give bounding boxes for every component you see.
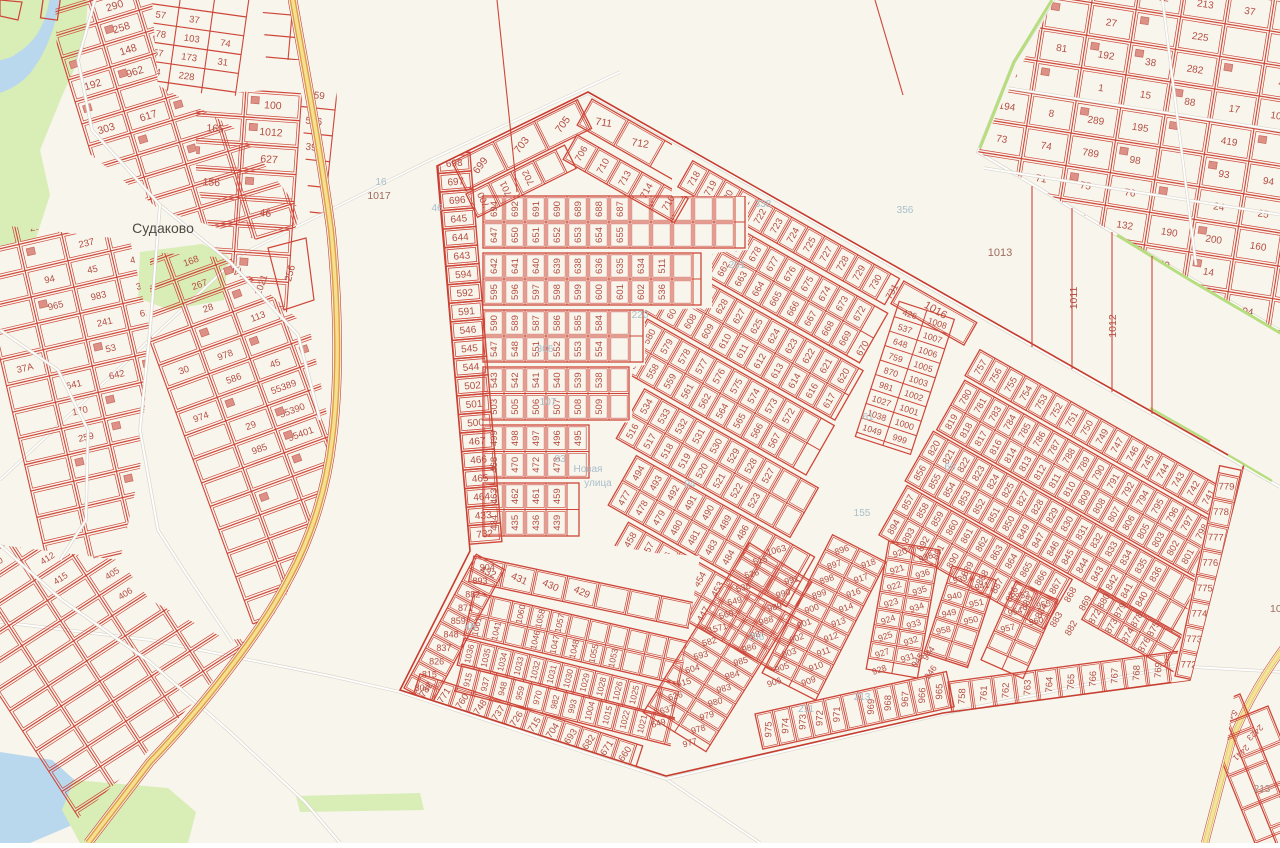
- svg-text:74: 74: [219, 38, 231, 50]
- svg-text:635: 635: [615, 258, 626, 274]
- svg-text:459: 459: [552, 488, 563, 504]
- svg-text:46: 46: [431, 203, 443, 214]
- svg-text:586: 586: [552, 315, 563, 331]
- svg-text:48: 48: [464, 622, 476, 633]
- svg-text:31: 31: [217, 56, 229, 68]
- svg-text:541: 541: [531, 372, 542, 388]
- svg-text:38: 38: [1144, 57, 1157, 70]
- svg-text:500: 500: [467, 417, 485, 429]
- svg-text:1012: 1012: [259, 126, 283, 140]
- svg-text:967: 967: [900, 691, 911, 707]
- svg-text:596: 596: [510, 284, 521, 300]
- svg-text:155: 155: [854, 508, 871, 519]
- svg-text:774: 774: [1191, 609, 1207, 620]
- svg-text:156: 156: [202, 176, 220, 189]
- svg-text:639: 639: [552, 258, 563, 274]
- svg-text:601: 601: [615, 284, 626, 300]
- svg-text:696: 696: [449, 195, 467, 207]
- svg-text:88: 88: [1183, 96, 1196, 109]
- svg-text:765: 765: [1066, 674, 1078, 690]
- svg-text:496: 496: [552, 430, 563, 446]
- svg-text:10: 10: [1270, 603, 1280, 615]
- svg-text:598: 598: [552, 284, 563, 300]
- svg-text:173: 173: [180, 51, 197, 64]
- svg-text:291: 291: [729, 260, 746, 271]
- svg-text:103: 103: [183, 33, 200, 46]
- svg-text:767: 767: [1109, 668, 1121, 684]
- svg-text:552: 552: [552, 341, 563, 357]
- svg-text:16: 16: [375, 177, 387, 188]
- svg-text:228: 228: [178, 70, 195, 83]
- svg-text:591: 591: [458, 306, 476, 318]
- svg-text:688: 688: [594, 201, 605, 217]
- svg-text:641: 641: [510, 258, 521, 274]
- svg-text:улица: улица: [584, 478, 612, 489]
- svg-text:165: 165: [206, 122, 224, 135]
- svg-text:544: 544: [462, 362, 480, 374]
- svg-text:837: 837: [436, 643, 451, 653]
- svg-text:100: 100: [264, 99, 282, 112]
- svg-text:508: 508: [573, 399, 584, 415]
- svg-text:37: 37: [188, 14, 200, 26]
- svg-text:655: 655: [615, 227, 626, 243]
- svg-text:584: 584: [594, 315, 605, 331]
- svg-text:472: 472: [531, 457, 542, 473]
- svg-text:547: 547: [489, 341, 500, 357]
- svg-text:554: 554: [594, 341, 605, 357]
- svg-text:826: 826: [429, 656, 444, 666]
- svg-text:503: 503: [489, 399, 500, 415]
- svg-text:83: 83: [554, 454, 566, 465]
- svg-text:589: 589: [510, 315, 521, 331]
- svg-text:968: 968: [883, 695, 894, 711]
- svg-text:213: 213: [1254, 784, 1271, 795]
- svg-text:462: 462: [510, 488, 521, 504]
- svg-text:46: 46: [259, 207, 272, 220]
- svg-text:495: 495: [573, 430, 584, 446]
- svg-text:540: 540: [552, 372, 563, 388]
- svg-text:470: 470: [510, 457, 521, 473]
- svg-text:545: 545: [461, 343, 479, 355]
- svg-text:206: 206: [748, 632, 765, 643]
- svg-text:338: 338: [755, 199, 772, 210]
- svg-text:650: 650: [510, 227, 521, 243]
- svg-text:651: 651: [531, 227, 542, 243]
- svg-text:461: 461: [531, 488, 542, 504]
- svg-text:94: 94: [1262, 176, 1275, 189]
- svg-text:553: 553: [573, 341, 584, 357]
- svg-text:356: 356: [897, 205, 914, 216]
- svg-text:1013: 1013: [988, 247, 1012, 259]
- svg-text:777: 777: [1208, 532, 1224, 543]
- svg-text:538: 538: [594, 372, 605, 388]
- svg-text:434: 434: [489, 515, 500, 531]
- svg-text:536: 536: [657, 284, 668, 300]
- svg-text:502: 502: [464, 380, 482, 392]
- svg-text:213: 213: [854, 692, 871, 703]
- svg-text:761: 761: [978, 685, 990, 701]
- svg-text:93: 93: [1218, 169, 1231, 182]
- svg-text:94: 94: [684, 479, 696, 490]
- svg-text:466: 466: [470, 454, 488, 466]
- svg-text:643: 643: [453, 250, 471, 262]
- svg-text:634: 634: [636, 258, 647, 274]
- svg-text:762: 762: [1000, 682, 1012, 698]
- svg-text:600: 600: [594, 284, 605, 300]
- svg-text:1011: 1011: [1068, 287, 1080, 310]
- svg-text:766: 766: [1088, 671, 1100, 687]
- svg-text:691: 691: [531, 201, 542, 217]
- svg-text:594: 594: [455, 269, 473, 281]
- svg-text:599: 599: [573, 284, 584, 300]
- svg-text:499: 499: [489, 430, 500, 446]
- svg-text:654: 654: [594, 227, 605, 243]
- svg-text:539: 539: [573, 372, 584, 388]
- svg-text:769: 769: [1153, 662, 1165, 678]
- svg-text:14: 14: [1202, 266, 1215, 279]
- svg-text:644: 644: [452, 232, 470, 244]
- svg-text:965: 965: [934, 684, 945, 700]
- svg-text:597: 597: [531, 284, 542, 300]
- svg-text:627: 627: [260, 153, 278, 166]
- svg-text:972: 972: [814, 710, 825, 726]
- svg-text:590: 590: [489, 315, 500, 331]
- svg-text:778: 778: [1213, 507, 1229, 518]
- svg-text:966: 966: [917, 687, 928, 703]
- svg-text:1017: 1017: [367, 190, 391, 202]
- svg-text:779: 779: [1218, 481, 1234, 492]
- svg-text:640: 640: [531, 258, 542, 274]
- svg-text:763: 763: [1022, 679, 1034, 695]
- svg-text:694: 694: [489, 201, 500, 217]
- svg-text:17: 17: [1228, 103, 1241, 116]
- svg-text:636: 636: [594, 258, 605, 274]
- svg-text:647: 647: [489, 227, 500, 243]
- svg-text:595: 595: [489, 284, 500, 300]
- svg-text:439: 439: [552, 515, 563, 531]
- svg-text:498: 498: [510, 430, 521, 446]
- svg-text:652: 652: [552, 227, 563, 243]
- svg-text:653: 653: [573, 227, 584, 243]
- svg-text:848: 848: [444, 630, 459, 640]
- svg-text:973: 973: [797, 714, 808, 730]
- svg-text:37: 37: [1243, 6, 1256, 19]
- svg-text:306: 306: [537, 344, 554, 355]
- svg-text:690: 690: [552, 201, 563, 217]
- svg-text:468: 468: [489, 457, 500, 473]
- svg-text:776: 776: [1202, 558, 1218, 569]
- svg-text:Новая: Новая: [574, 464, 603, 475]
- svg-text:107: 107: [540, 397, 557, 408]
- svg-text:638: 638: [573, 258, 584, 274]
- svg-text:546: 546: [459, 325, 477, 337]
- svg-text:501: 501: [465, 399, 483, 411]
- svg-text:73: 73: [995, 133, 1008, 146]
- svg-text:509: 509: [594, 399, 605, 415]
- svg-text:971: 971: [832, 706, 843, 722]
- svg-text:220: 220: [632, 310, 649, 321]
- svg-text:57: 57: [155, 9, 167, 21]
- svg-text:497: 497: [531, 430, 542, 446]
- svg-text:74: 74: [1040, 141, 1053, 154]
- svg-text:602: 602: [636, 284, 647, 300]
- svg-text:211: 211: [798, 704, 814, 715]
- svg-text:511: 511: [657, 258, 668, 273]
- svg-text:543: 543: [489, 372, 500, 388]
- svg-text:435: 435: [510, 515, 521, 531]
- svg-text:689: 689: [573, 201, 584, 217]
- svg-text:542: 542: [510, 372, 521, 388]
- svg-text:587: 587: [531, 315, 542, 331]
- svg-text:775: 775: [1197, 583, 1213, 594]
- svg-text:974: 974: [780, 718, 791, 734]
- svg-text:463: 463: [489, 488, 500, 504]
- svg-text:27: 27: [1105, 17, 1118, 30]
- svg-text:768: 768: [1131, 665, 1143, 681]
- svg-text:98: 98: [1129, 155, 1142, 168]
- svg-text:60: 60: [944, 462, 956, 473]
- svg-text:692: 692: [510, 201, 521, 217]
- svg-text:764: 764: [1044, 677, 1056, 693]
- svg-text:758: 758: [957, 688, 969, 704]
- svg-text:687: 687: [615, 201, 626, 217]
- svg-text:645: 645: [450, 213, 468, 225]
- svg-text:505: 505: [510, 399, 521, 415]
- svg-text:81: 81: [1055, 43, 1068, 56]
- svg-text:467: 467: [468, 436, 486, 448]
- svg-text:436: 436: [531, 515, 542, 531]
- svg-text:15: 15: [1139, 89, 1152, 102]
- svg-text:548: 548: [510, 341, 521, 357]
- svg-text:642: 642: [489, 258, 500, 274]
- svg-text:592: 592: [456, 287, 474, 299]
- svg-text:975: 975: [763, 721, 774, 737]
- svg-text:1012: 1012: [1107, 314, 1119, 338]
- svg-text:61: 61: [862, 412, 874, 423]
- svg-text:Судаково: Судаково: [132, 220, 194, 236]
- svg-text:585: 585: [573, 315, 584, 331]
